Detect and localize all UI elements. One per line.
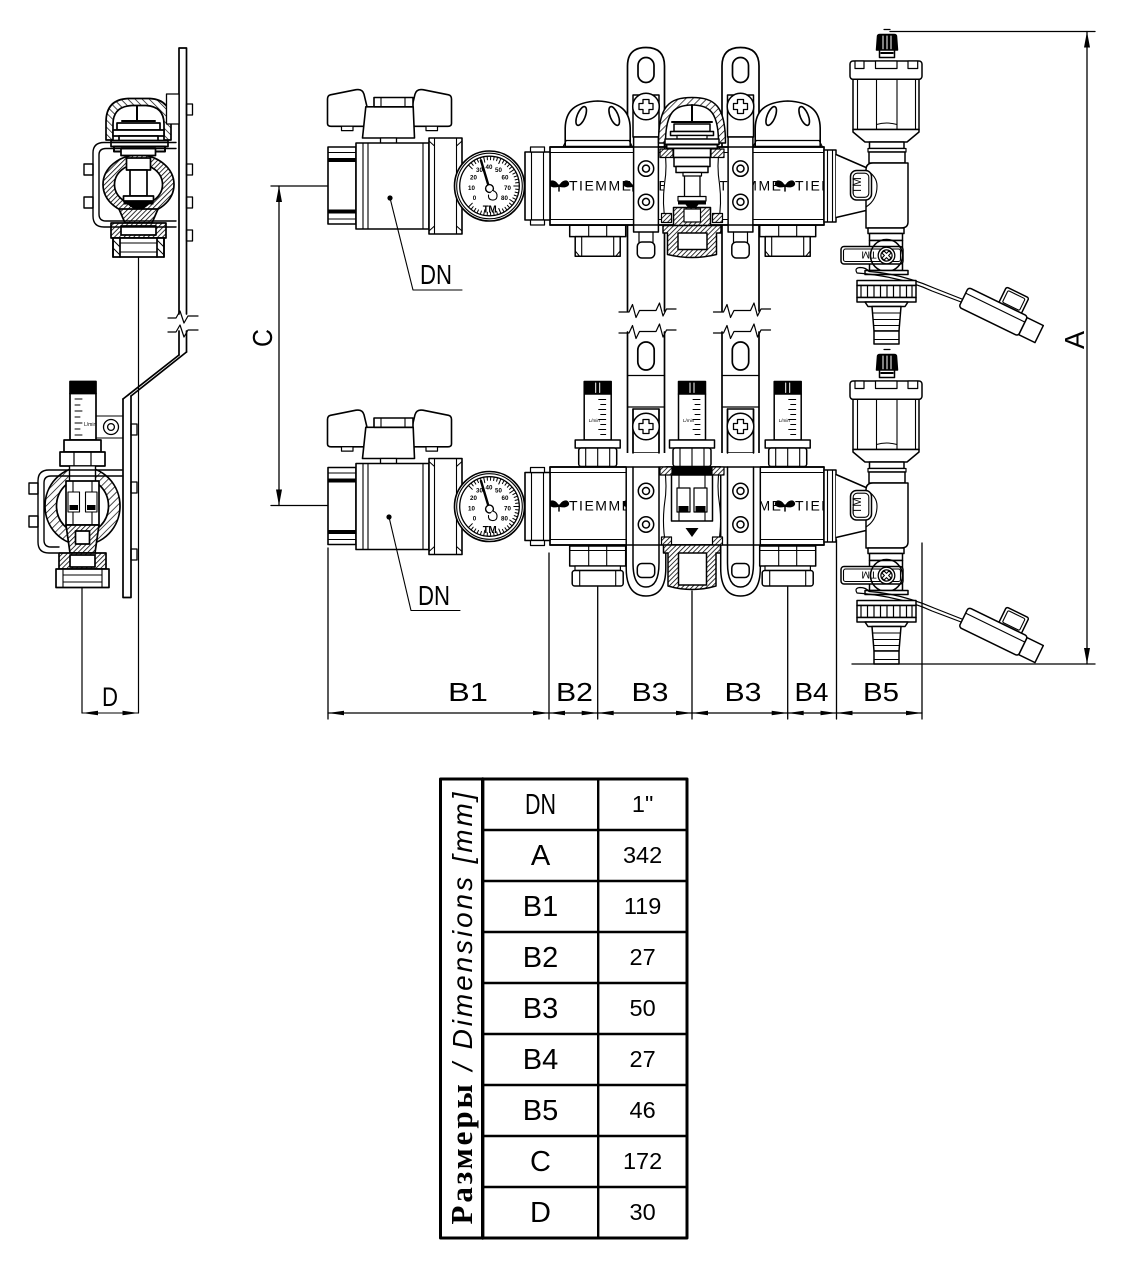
svg-text:B5: B5 — [863, 677, 899, 707]
svg-text:30: 30 — [630, 1199, 656, 1225]
svg-text:B3: B3 — [725, 677, 762, 707]
svg-text:C: C — [530, 1146, 551, 1178]
svg-text:172: 172 — [623, 1148, 662, 1174]
svg-text:27: 27 — [630, 1046, 656, 1072]
svg-text:B2: B2 — [556, 677, 593, 707]
svg-text:B4: B4 — [795, 677, 829, 707]
svg-text:B3: B3 — [523, 993, 558, 1025]
svg-text:DN: DN — [525, 789, 556, 821]
svg-text:TIEMME: TIEMME — [569, 498, 632, 514]
svg-text:50: 50 — [630, 995, 656, 1021]
svg-text:D: D — [530, 1197, 551, 1229]
svg-text:B2: B2 — [523, 942, 558, 974]
svg-text:TIEMME: TIEMME — [569, 178, 632, 194]
svg-text:119: 119 — [624, 893, 661, 919]
svg-text:B4: B4 — [523, 1044, 558, 1076]
svg-text:Размеры / Dimensions [mm]: Размеры / Dimensions [mm] — [444, 791, 479, 1224]
svg-text:27: 27 — [630, 944, 656, 970]
svg-text:A: A — [1059, 331, 1090, 349]
svg-text:DN: DN — [420, 259, 452, 290]
svg-text:1": 1" — [632, 791, 653, 817]
svg-text:D: D — [102, 682, 118, 712]
svg-text:B1: B1 — [448, 677, 488, 707]
svg-text:46: 46 — [630, 1097, 656, 1123]
svg-text:342: 342 — [623, 842, 662, 868]
svg-text:L/min: L/min — [84, 422, 96, 428]
svg-text:B1: B1 — [523, 891, 558, 923]
svg-text:B5: B5 — [523, 1095, 558, 1127]
svg-text:A: A — [531, 840, 551, 872]
svg-text:DN: DN — [418, 580, 450, 611]
svg-text:C: C — [247, 329, 278, 347]
svg-text:B3: B3 — [632, 677, 669, 707]
